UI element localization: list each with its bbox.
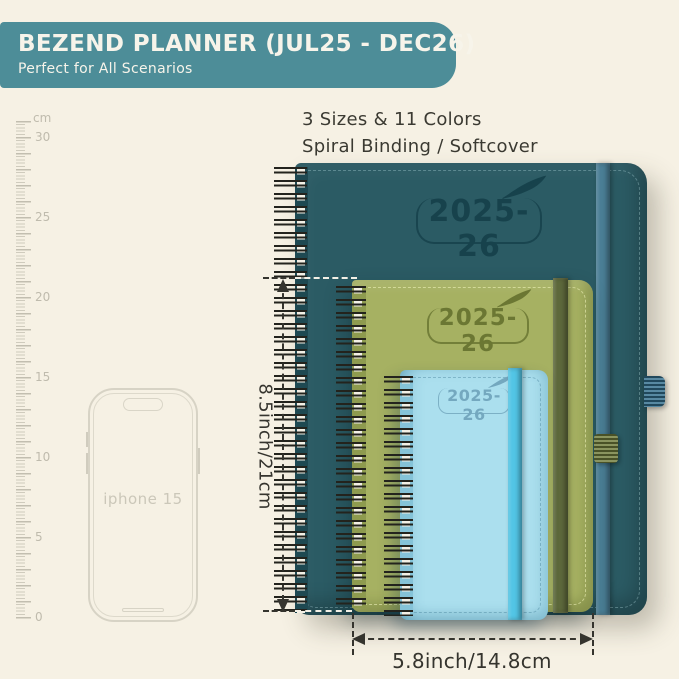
planner-medium-emboss: 2025-26 — [427, 308, 529, 344]
arrow-left-icon — [352, 633, 365, 645]
iphone-volume-button — [86, 432, 88, 447]
header-banner: BEZEND PLANNER (JUL25 - DEC26) Perfect f… — [0, 22, 456, 88]
arrow-up-icon — [277, 279, 289, 292]
intro-line-binding: Spiral Binding / Softcover — [302, 133, 538, 160]
iphone-volume-button — [86, 453, 88, 474]
intro-line-sizes: 3 Sizes & 11 Colors — [302, 106, 538, 133]
height-dimension-line — [282, 283, 284, 611]
planner-medium-spiral-binding — [336, 286, 366, 608]
iphone-power-button — [198, 448, 200, 474]
iphone-home-indicator — [122, 608, 164, 612]
iphone-dynamic-island — [123, 398, 163, 411]
planner-small-elastic-band — [508, 368, 522, 620]
iphone-label: iphone 15 — [90, 490, 196, 508]
ruler-unit-label: cm — [33, 111, 51, 125]
projection-line — [263, 610, 295, 612]
intro-text: 3 Sizes & 11 Colors Spiral Binding / Sof… — [302, 106, 538, 160]
planner-large-pen-loop — [644, 376, 665, 407]
planner-medium-elastic-band — [553, 278, 568, 613]
iphone-outline: iphone 15 — [88, 388, 198, 622]
ruler-label-15: 15 — [35, 370, 59, 384]
planner-large-spiral-binding — [274, 167, 307, 613]
ruler-major-ticks — [16, 121, 31, 619]
planner-small-year: 2025-26 — [438, 386, 510, 424]
planner-large-emboss: 2025-26 — [416, 198, 542, 244]
height-dimension-label: 8.5inch/21cm — [255, 382, 276, 512]
ruler-label-30: 30 — [35, 130, 59, 144]
projection-line — [295, 610, 352, 612]
width-dimension-line — [358, 638, 586, 640]
banner-subtitle: Perfect for All Scenarios — [18, 61, 442, 77]
planner-large-year: 2025-26 — [416, 194, 542, 264]
arrow-right-icon — [580, 633, 593, 645]
ruler-label-10: 10 — [35, 450, 59, 464]
ruler-label-25: 25 — [35, 210, 59, 224]
banner-title: BEZEND PLANNER (JUL25 - DEC26) — [18, 31, 442, 57]
planner-small-emboss: 2025-26 — [438, 388, 510, 414]
ruler-label-5: 5 — [35, 530, 59, 544]
ruler-label-0: 0 — [35, 610, 59, 624]
planner-medium-pen-loop — [594, 434, 618, 463]
width-dimension-label: 5.8inch/14.8cm — [372, 649, 572, 673]
planner-small-spiral-binding — [384, 376, 413, 616]
planner-medium-year: 2025-26 — [427, 305, 529, 357]
planner-large-elastic-band — [596, 163, 610, 615]
projection-line — [295, 277, 357, 279]
product-image-canvas: BEZEND PLANNER (JUL25 - DEC26) Perfect f… — [0, 0, 679, 679]
ruler-label-20: 20 — [35, 290, 59, 304]
projection-line — [263, 277, 295, 279]
feather-logo-icon — [500, 174, 548, 201]
feather-logo-icon — [495, 288, 533, 309]
